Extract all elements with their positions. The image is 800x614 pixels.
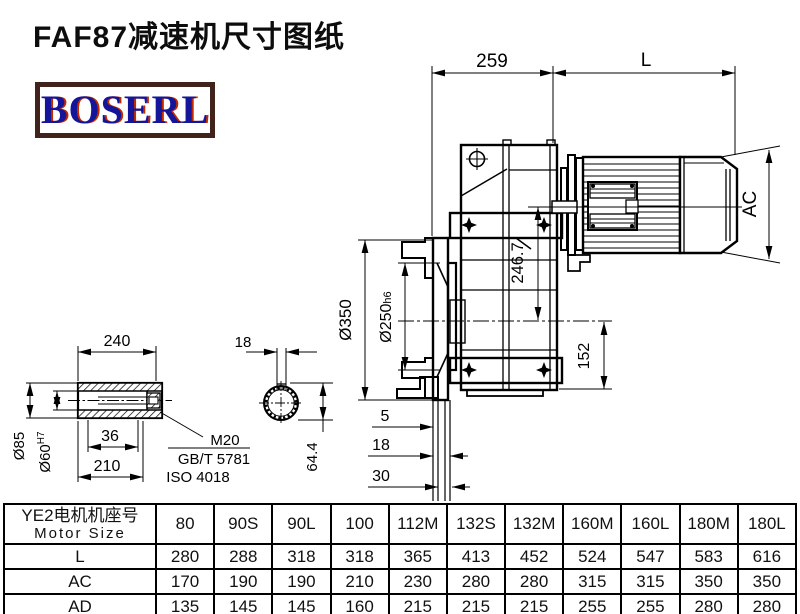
dim-350-label: Ø350 bbox=[336, 299, 355, 341]
cell: 547 bbox=[621, 544, 679, 569]
dim-246-label: 246.7 bbox=[509, 242, 527, 283]
table-header-motor-size: YE2电机机座号 Motor Size bbox=[4, 504, 156, 544]
cell: 524 bbox=[563, 544, 621, 569]
dim-36-label: 36 bbox=[101, 428, 119, 445]
dim-210-label: 210 bbox=[94, 458, 121, 475]
col-header: 100 bbox=[331, 504, 389, 544]
dim-152-label: 152 bbox=[576, 343, 593, 370]
col-header: 180L bbox=[738, 504, 796, 544]
cell: 365 bbox=[389, 544, 447, 569]
cell: 255 bbox=[563, 594, 621, 614]
dim-60h7-label: Ø60H7 bbox=[36, 431, 54, 473]
cell: 135 bbox=[156, 594, 214, 614]
motor-size-table: YE2电机机座号 Motor Size 80 90S 90L 100 112M … bbox=[3, 503, 797, 614]
dim-250h6-label: Ø250h6 bbox=[378, 291, 395, 342]
cell: 145 bbox=[272, 594, 330, 614]
main-dimension-lines bbox=[358, 66, 780, 487]
main-dimension-labels: 259 L AC 246.7 Ø350 Ø250h6 152 5 18 30 bbox=[336, 50, 761, 485]
cell: 318 bbox=[272, 544, 330, 569]
row-label: AC bbox=[4, 569, 156, 594]
table-row-l: L 280 288 318 318 365 413 452 524 547 58… bbox=[4, 544, 796, 569]
reducer-dimension-sheet: FAF87减速机尺寸图纸 BOSERL bbox=[0, 0, 800, 614]
col-header: 112M bbox=[389, 504, 447, 544]
cell: 350 bbox=[680, 569, 738, 594]
cell: 255 bbox=[621, 594, 679, 614]
cell: 190 bbox=[214, 569, 272, 594]
cell: 215 bbox=[447, 594, 505, 614]
col-header: 180M bbox=[680, 504, 738, 544]
key-18-label: 18 bbox=[235, 334, 252, 351]
cell: 350 bbox=[738, 569, 796, 594]
dim-30-label: 30 bbox=[372, 468, 390, 485]
cell: 280 bbox=[447, 569, 505, 594]
dim-18-label: 18 bbox=[372, 437, 390, 454]
cell: 230 bbox=[389, 569, 447, 594]
col-header: 132S bbox=[447, 504, 505, 544]
row-label: L bbox=[4, 544, 156, 569]
cell: 170 bbox=[156, 569, 214, 594]
col-header: 160L bbox=[621, 504, 679, 544]
cell: 318 bbox=[331, 544, 389, 569]
dim-240-label: 240 bbox=[104, 333, 131, 350]
cell: 280 bbox=[738, 594, 796, 614]
key-644-label: 64.4 bbox=[304, 442, 321, 471]
cell: 616 bbox=[738, 544, 796, 569]
shaft-cross-section bbox=[259, 348, 303, 425]
row-label: AD bbox=[4, 594, 156, 614]
thread-callout-m20: M20 bbox=[210, 432, 239, 449]
col-header: 160M bbox=[563, 504, 621, 544]
dim-85-label: Ø85 bbox=[11, 432, 28, 460]
dim-ac-label: AC bbox=[740, 191, 761, 217]
cell: 280 bbox=[680, 594, 738, 614]
table-header-en: Motor Size bbox=[5, 525, 155, 542]
cell: 315 bbox=[621, 569, 679, 594]
cell: 583 bbox=[680, 544, 738, 569]
cell: 210 bbox=[331, 569, 389, 594]
cell: 145 bbox=[214, 594, 272, 614]
col-header: 90L bbox=[272, 504, 330, 544]
cell: 452 bbox=[505, 544, 563, 569]
col-header: 132M bbox=[505, 504, 563, 544]
cell: 160 bbox=[331, 594, 389, 614]
table-row-ac: AC 170 190 190 210 230 280 280 315 315 3… bbox=[4, 569, 796, 594]
gearbox-body bbox=[450, 140, 562, 396]
cell: 280 bbox=[505, 569, 563, 594]
cell: 190 bbox=[272, 569, 330, 594]
thread-callout-gb: GB/T 5781 bbox=[178, 451, 250, 468]
dim-l-label: L bbox=[641, 50, 652, 71]
cell: 288 bbox=[214, 544, 272, 569]
cell: 215 bbox=[389, 594, 447, 614]
cell: 280 bbox=[156, 544, 214, 569]
motor bbox=[552, 155, 737, 271]
col-header: 90S bbox=[214, 504, 272, 544]
dim-5-label: 5 bbox=[381, 408, 390, 425]
table-header-row: YE2电机机座号 Motor Size 80 90S 90L 100 112M … bbox=[4, 504, 796, 544]
table-row-ad: AD 135 145 145 160 215 215 215 255 255 2… bbox=[4, 594, 796, 614]
thread-callout-iso: ISO 4018 bbox=[166, 469, 229, 486]
cell: 315 bbox=[563, 569, 621, 594]
dim-259-label: 259 bbox=[476, 51, 508, 72]
table-header-cn: YE2电机机座号 bbox=[5, 506, 155, 525]
col-header: 80 bbox=[156, 504, 214, 544]
cell: 413 bbox=[447, 544, 505, 569]
cell: 215 bbox=[505, 594, 563, 614]
